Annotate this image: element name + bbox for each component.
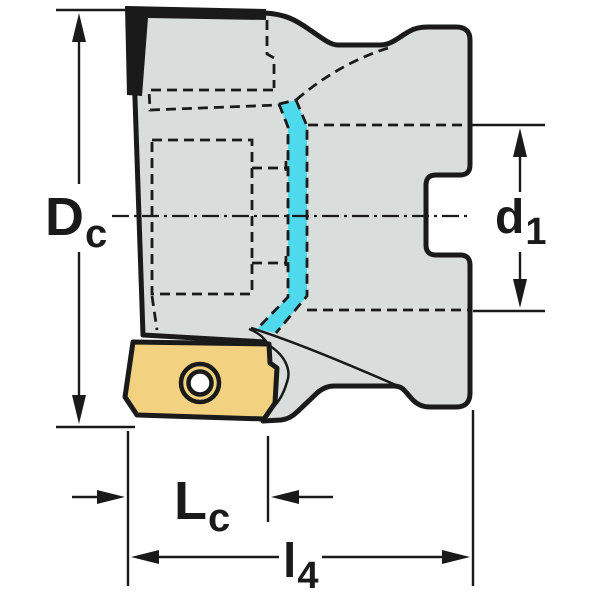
l4-arrow-left — [131, 550, 159, 564]
l4-label-subscript: 4 — [297, 555, 318, 597]
dimension-label-d1: d1 — [495, 194, 546, 242]
lc-arrow-right — [271, 490, 299, 504]
d1-label-main: d — [495, 191, 524, 244]
lc-label-main: L — [174, 471, 207, 531]
insert-screw-hole-bore — [189, 372, 212, 395]
l4-arrow-right — [442, 550, 470, 564]
dc-arrow-down — [72, 395, 86, 424]
dc-label-main: D — [45, 187, 84, 247]
l4-label-main: l — [283, 535, 296, 588]
dimension-label-dc: Dc — [45, 190, 107, 244]
drawing-canvas — [0, 0, 600, 600]
dc-arrow-up — [72, 13, 86, 42]
milling-cutter-technical-drawing: Dc d1 Lc l4 — [0, 0, 600, 600]
d1-arrow-up — [513, 128, 527, 157]
dc-label-subscript: c — [85, 212, 107, 256]
d1-label-subscript: 1 — [525, 211, 546, 253]
lc-arrow-left — [97, 490, 125, 504]
dimension-label-l4: l4 — [283, 538, 318, 586]
d1-arrow-down — [513, 279, 527, 308]
dimension-label-lc: Lc — [174, 474, 230, 528]
lc-label-subscript: c — [208, 496, 230, 540]
